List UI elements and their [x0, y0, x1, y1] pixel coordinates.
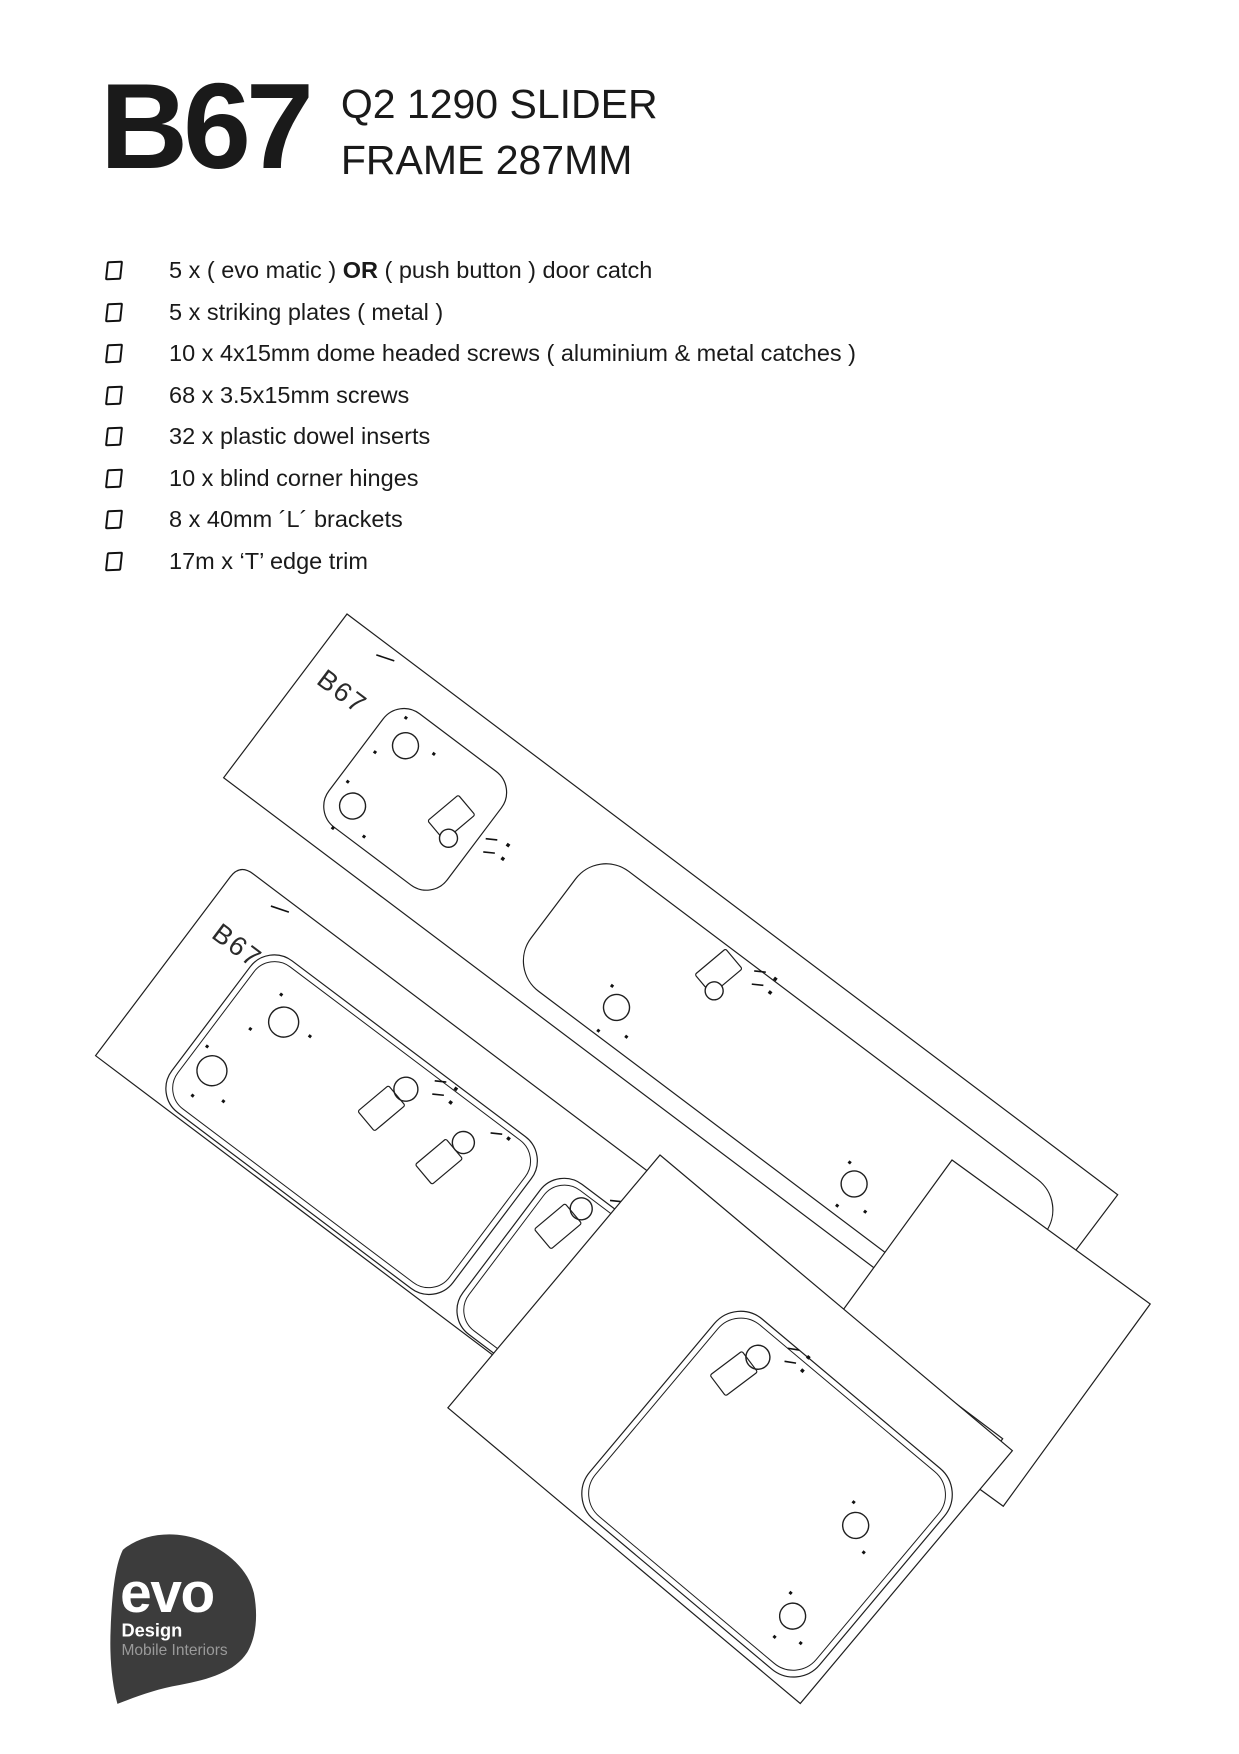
logo-line2-text: Mobile Interiors — [121, 1642, 227, 1659]
document-page: B67 Q2 1290 SLIDER FRAME 287MM 5 x ( evo… — [0, 0, 1239, 1754]
logo-brand-text: evo — [120, 1562, 214, 1625]
logo-line1-text: Design — [121, 1619, 182, 1640]
evo-logo: evo Design Mobile Interiors — [90, 1512, 280, 1712]
technical-drawing: B67 — [0, 0, 1239, 1754]
